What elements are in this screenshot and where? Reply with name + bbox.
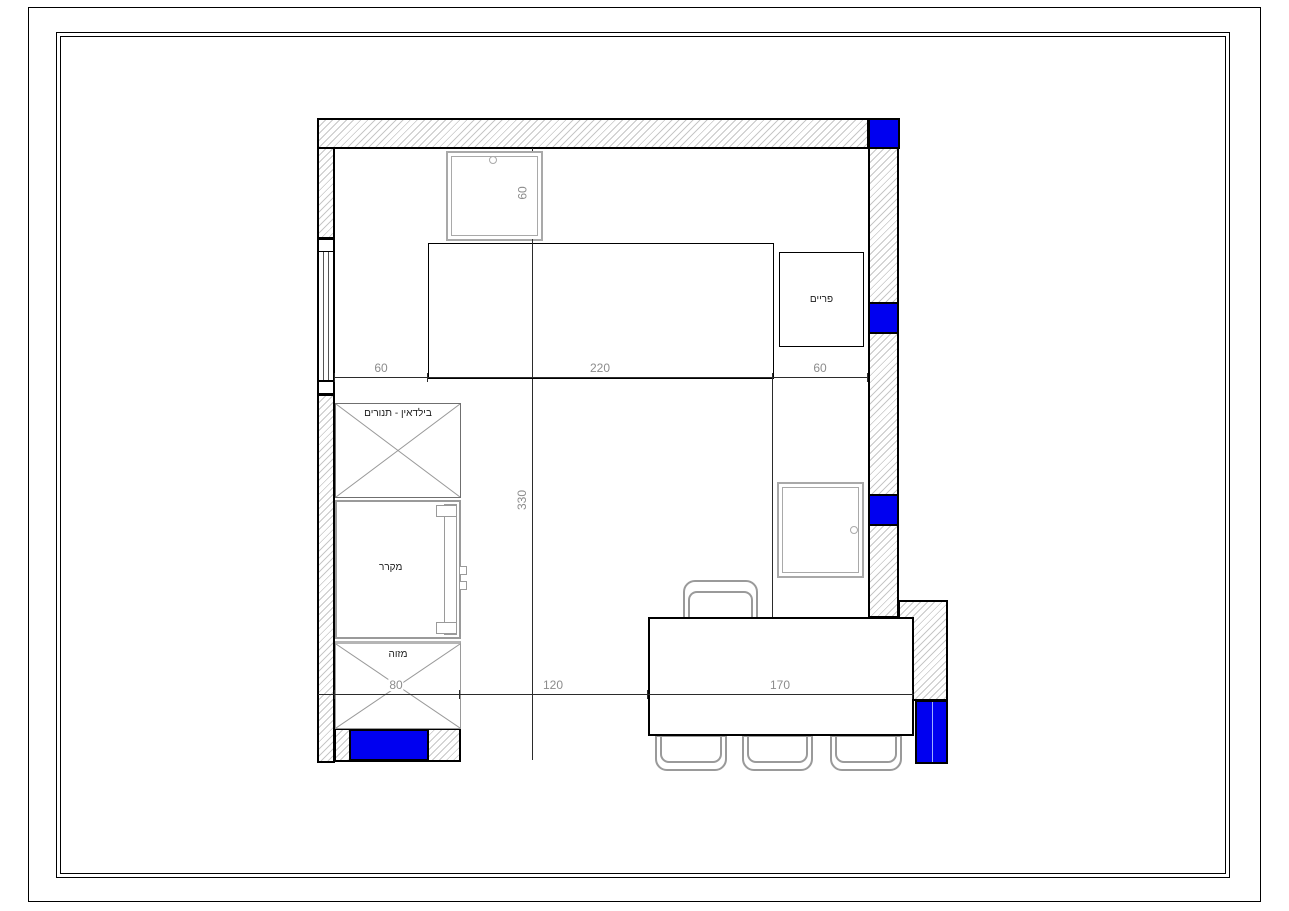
window-sill-top — [317, 238, 335, 253]
dim-tick — [532, 239, 533, 248]
appliance-knob-icon — [850, 526, 858, 534]
dim-tick — [912, 690, 913, 699]
dim-label-170: 170 — [770, 679, 790, 691]
drawing-sheet: 60 פריים בילדאין - תנורים מקרר מזוה — [0, 0, 1289, 911]
appliance-door — [782, 487, 859, 573]
window-glass-line — [323, 252, 324, 381]
dining-table — [648, 617, 914, 736]
dim-line-top — [334, 377, 868, 378]
dim-label-top-60-left: 60 — [374, 362, 387, 374]
dim-tick — [867, 373, 868, 382]
faucet-icon — [489, 156, 497, 164]
dim-tick — [647, 690, 648, 699]
blue-column-right-1 — [868, 302, 899, 334]
corner-cabinet-box: פריים — [779, 252, 864, 347]
chair-bottom-3 — [830, 735, 902, 771]
window-glass-line — [328, 252, 329, 381]
blue-column-top-right — [868, 118, 900, 149]
dim-tick — [772, 373, 773, 382]
dim-label-330: 330 — [516, 490, 528, 510]
fridge-handle-lower — [459, 581, 467, 590]
fridge-hinge-bottom — [436, 622, 457, 634]
dim-tick — [532, 751, 533, 760]
refrigerator-label: מקרר — [379, 562, 402, 573]
dim-tick — [427, 373, 428, 382]
appliance-box — [777, 482, 864, 578]
dim-label-sink-60: 60 — [517, 186, 529, 199]
wall-top — [317, 118, 869, 149]
builtin-ovens-label: בילדאין - תנורים — [362, 408, 434, 419]
dim-tick — [334, 373, 335, 382]
window-left — [317, 252, 335, 381]
blue-column-bottom-right — [915, 700, 948, 764]
dim-line-bottom — [318, 694, 914, 695]
window-sill-bottom — [317, 380, 335, 395]
dim-label-80: 80 — [388, 679, 403, 691]
sheet-frame-inner-b — [60, 36, 1226, 874]
wall-right-lower — [868, 524, 899, 618]
wall-right-middle — [868, 332, 899, 496]
blue-column-right-2 — [868, 494, 899, 526]
fridge-hinge-top — [436, 505, 457, 517]
blue-column-bottom-left — [349, 729, 429, 761]
dim-label-top-220: 220 — [590, 362, 610, 374]
wall-left-lower — [317, 394, 335, 763]
dim-label-top-60-right: 60 — [813, 362, 826, 374]
dim-label-120: 120 — [543, 679, 563, 691]
chair-bottom-2 — [742, 735, 813, 771]
cabinet-builtin-ovens: בילדאין - תנורים — [335, 403, 461, 498]
extension-line-right-counter — [772, 378, 773, 617]
blue-column-split-line — [932, 702, 933, 762]
fridge-handle-upper — [459, 566, 467, 575]
wall-right-upper — [868, 147, 899, 304]
chair-bottom-1 — [655, 735, 727, 771]
corner-cabinet-label: פריים — [810, 294, 833, 305]
refrigerator: מקרר — [335, 500, 461, 639]
fridge-door-panel — [444, 504, 457, 635]
counter-top-run — [428, 243, 774, 379]
chair-top — [683, 580, 758, 620]
wall-left-upper — [317, 147, 335, 239]
pantry-label: מזוה — [386, 649, 409, 660]
